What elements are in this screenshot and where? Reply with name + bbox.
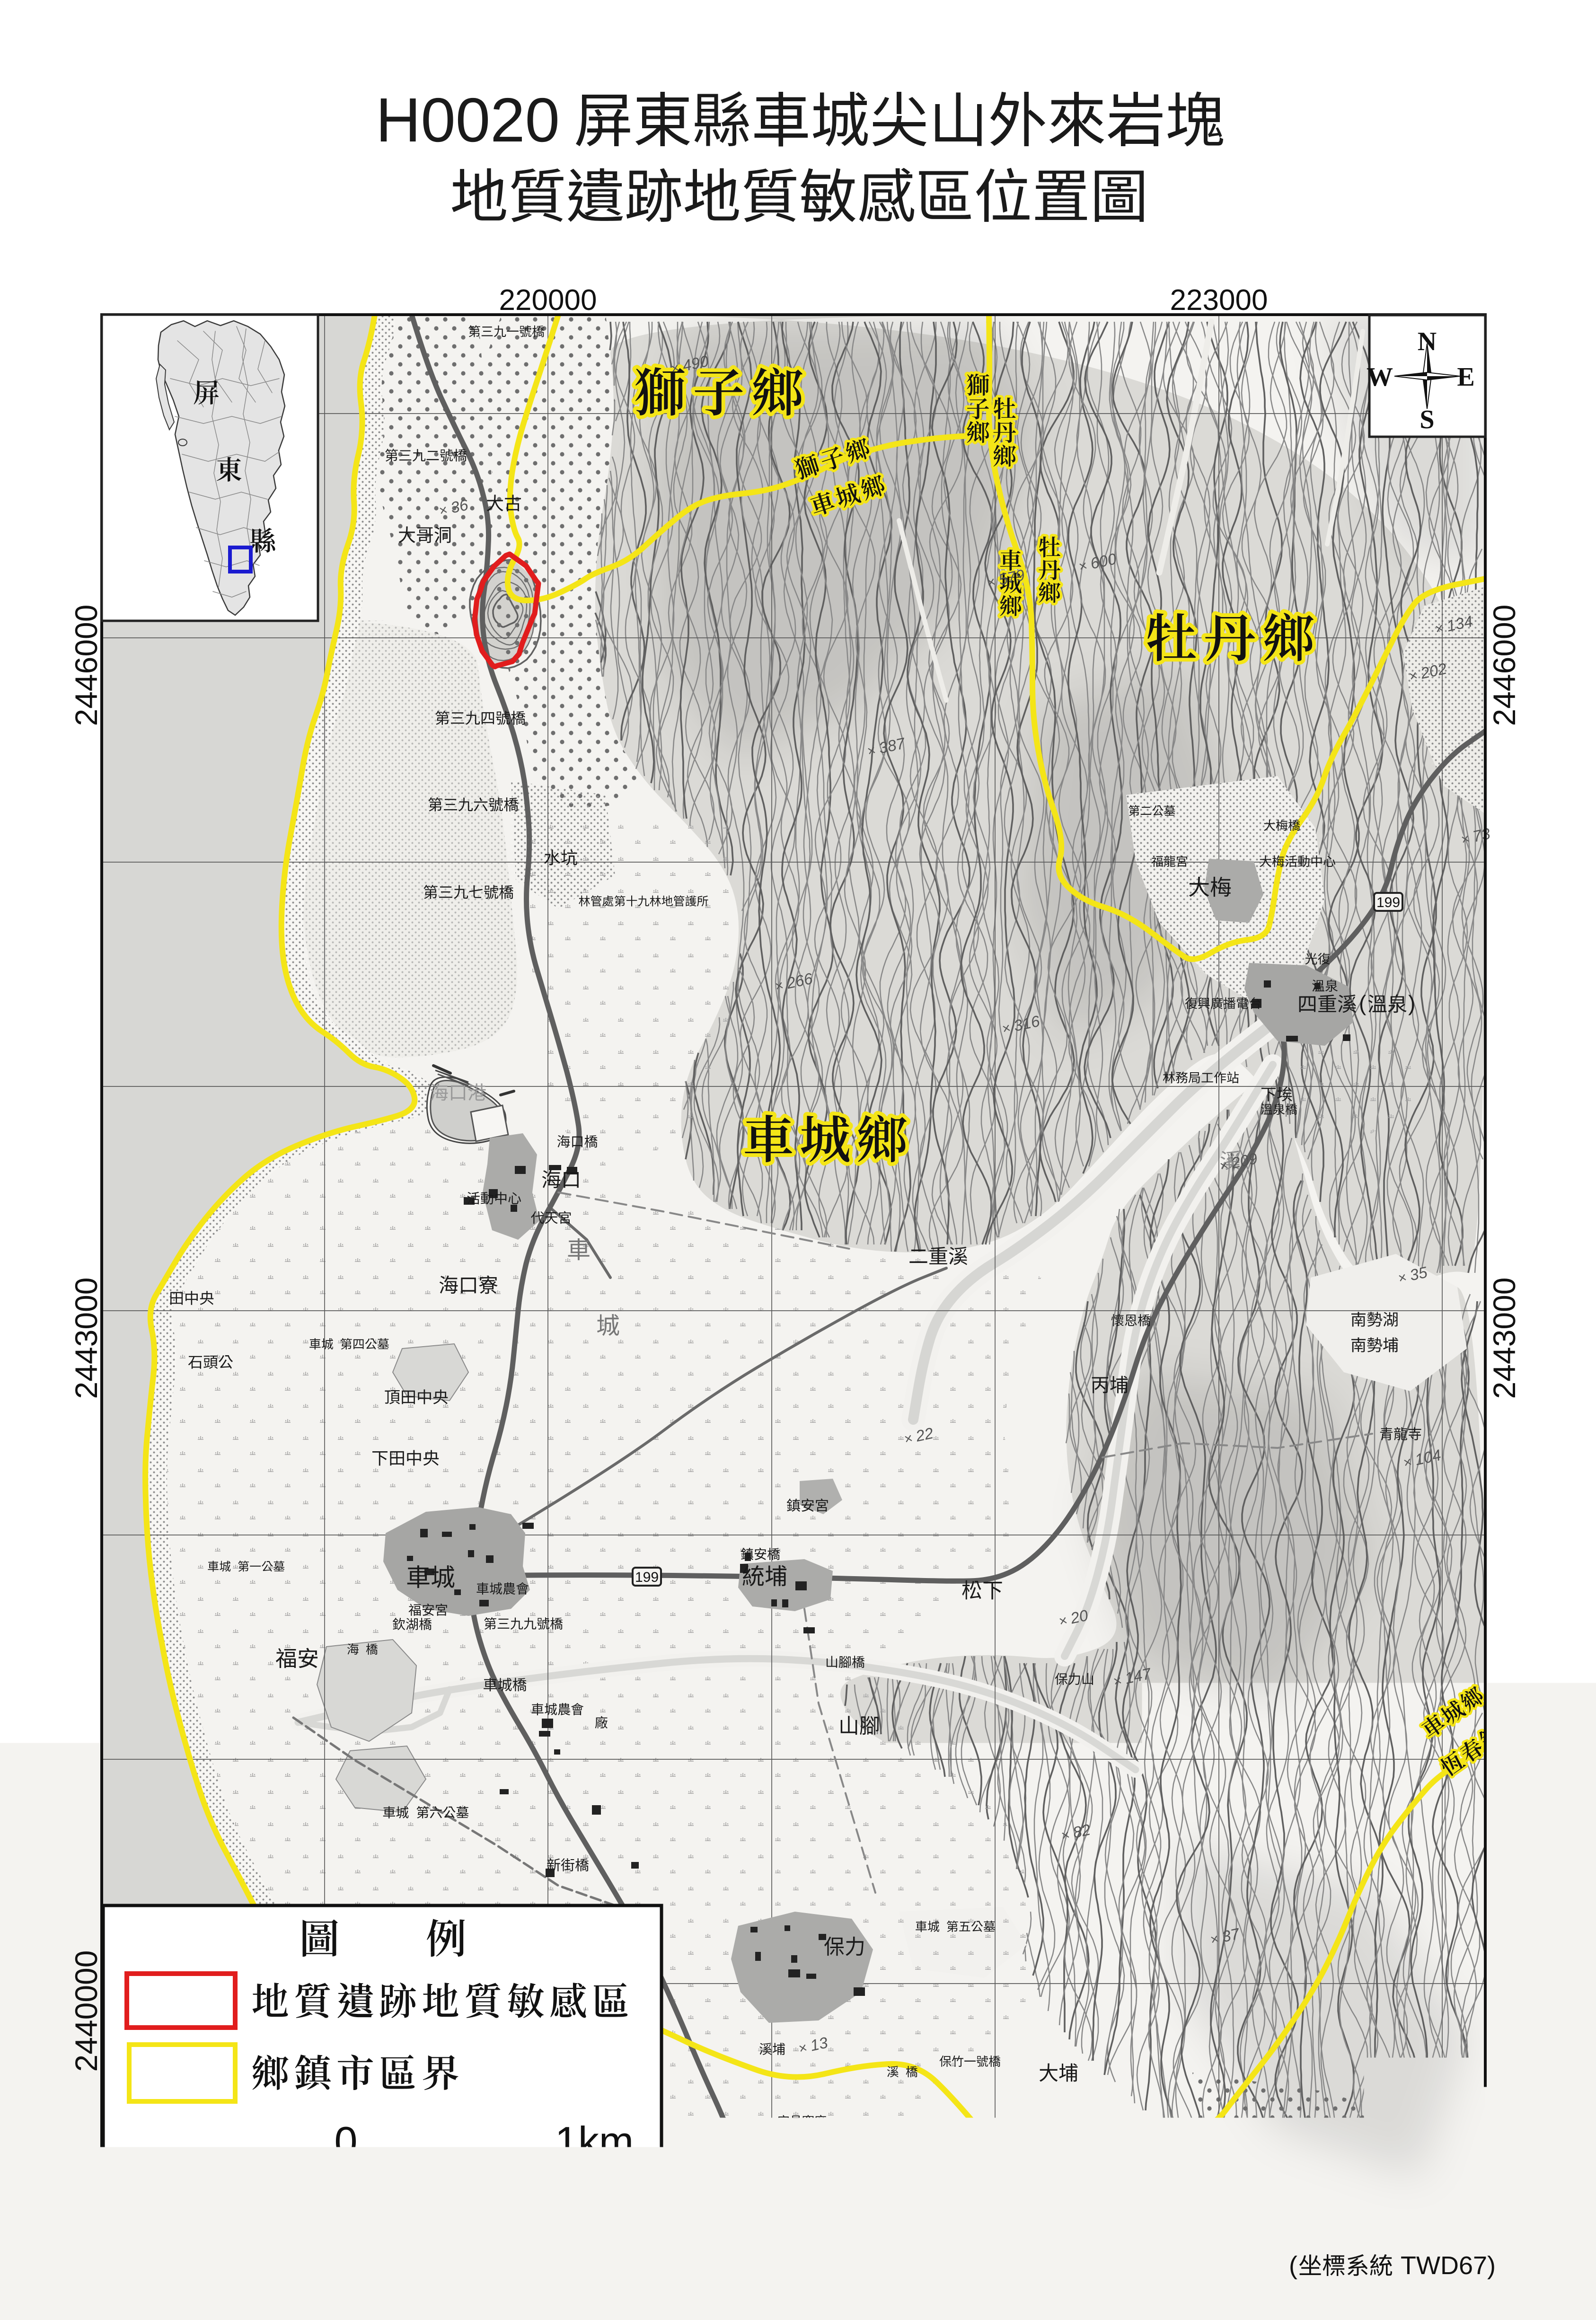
svg-text:2440000: 2440000 (1487, 1950, 1522, 2072)
svg-text:2443000: 2443000 (1487, 1278, 1522, 1399)
svg-text:223000: 223000 (1170, 284, 1268, 317)
svg-text:(: ( (1289, 2251, 1297, 2280)
svg-text:220000: 220000 (499, 2220, 597, 2253)
svg-text:0: 0 (335, 2118, 358, 2165)
svg-text:TWD67): TWD67) (1401, 2251, 1496, 2280)
svg-text:H0020: H0020 (376, 85, 560, 155)
svg-text:E: E (1457, 362, 1474, 392)
svg-text:(: ( (1359, 991, 1367, 1015)
svg-text:W: W (1367, 362, 1393, 392)
svg-text:N: N (1418, 327, 1437, 356)
svg-text:1km: 1km (555, 2118, 634, 2165)
svg-text:2440000: 2440000 (69, 1950, 104, 2072)
svg-text:199: 199 (635, 1570, 659, 1585)
svg-text:223000: 223000 (1172, 2220, 1270, 2253)
svg-text:S: S (1420, 405, 1434, 434)
svg-text:199: 199 (1376, 895, 1400, 910)
svg-text:2446000: 2446000 (1487, 605, 1522, 726)
svg-text:220000: 220000 (499, 284, 597, 317)
svg-text:): ) (1408, 991, 1415, 1015)
svg-text:2446000: 2446000 (69, 605, 104, 726)
svg-text:2443000: 2443000 (69, 1278, 104, 1399)
